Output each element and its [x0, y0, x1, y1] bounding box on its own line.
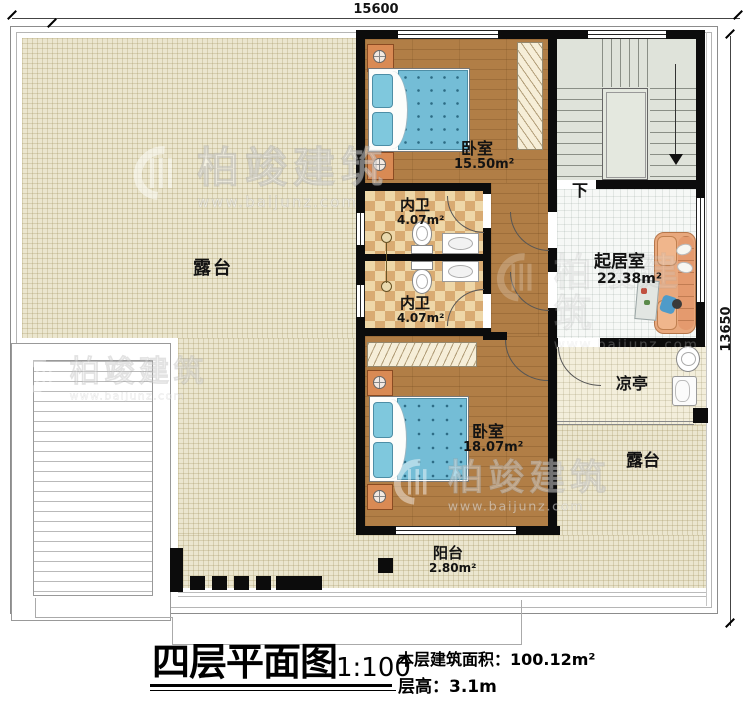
nightstand: [367, 484, 393, 510]
stair-treads-left: [557, 88, 602, 180]
balcony-railing-line: [178, 592, 706, 593]
room-label-bath-top: 内卫: [400, 198, 430, 213]
floor-area-line: 本层建筑面积：100.12m²: [398, 646, 595, 670]
balcony-railing-line: [178, 596, 706, 597]
lower-floor-outline: [35, 598, 36, 618]
plan-title: 四层平面图: [152, 642, 337, 684]
room-label-bedroom-top: 卧室: [461, 141, 493, 157]
wardrobe-bedroom-bottom: [367, 342, 477, 367]
column-balcony: [378, 558, 393, 573]
room-label-pavilion: 凉亭: [616, 376, 648, 392]
floor-height-line: 层高：3.1m: [398, 672, 497, 697]
floor-area-value: 100.12m²: [510, 650, 595, 669]
stair-down-arrowhead: [669, 154, 683, 165]
room-area-bath-top: 4.07m²: [397, 214, 444, 226]
window-bedroom-bottom: [396, 526, 516, 535]
dimension-right-value: 13650: [720, 299, 734, 359]
sink-basin: [448, 237, 473, 250]
pillow: [372, 112, 393, 146]
railing-post: [234, 576, 249, 590]
floor-height-label: 层高：: [398, 677, 449, 697]
door-gap-hall-living-1: [548, 212, 557, 248]
stairs-direction-label: 下: [572, 183, 588, 199]
door-gap-hall-living-2: [548, 272, 557, 308]
railing-segment-long: [276, 576, 322, 590]
lower-roof-slats: [33, 360, 153, 596]
stair-newel-inner: [606, 92, 646, 178]
floor-plan: 柏竣建筑 www.baijunz.com 柏竣建筑 www.baijunz.co…: [0, 0, 750, 704]
terrace-floor-left-column: [178, 338, 356, 535]
door-gap-bath-top: [483, 194, 491, 228]
window-bath-bottom: [356, 285, 365, 317]
pillow: [372, 74, 393, 108]
floor-height-value: 3.1m: [449, 677, 497, 697]
window-living: [696, 198, 705, 302]
lamp-icon: [373, 50, 386, 63]
window-bath-top: [356, 213, 365, 245]
shower-pipe: [386, 242, 387, 283]
stair-walkline: [675, 64, 676, 156]
pavilion-sink-basin: [681, 352, 696, 366]
title-underline-thick: [150, 684, 392, 687]
wall-bath-divider: [356, 254, 491, 261]
room-label-living: 起居室: [594, 254, 645, 271]
lower-floor-outline: [35, 617, 173, 618]
floor-area-label: 本层建筑面积：: [398, 650, 510, 669]
sofa-cushion: [657, 236, 677, 266]
stair-winders: [602, 39, 648, 87]
sink-basin: [448, 265, 473, 278]
room-label-terrace-lower: 露台: [626, 453, 660, 470]
column-pavilion-right: [693, 408, 708, 423]
person-head: [672, 299, 682, 309]
room-label-balcony: 阳台: [433, 546, 463, 561]
toilet-bowl-inner: [416, 274, 428, 289]
wall-west: [356, 30, 365, 535]
room-label-terrace-main: 露台: [193, 260, 233, 278]
railing-corner: [170, 548, 183, 592]
terrace-floor-main: [22, 38, 356, 338]
parapet-line-right: [706, 32, 707, 606]
table-item: [641, 288, 647, 294]
bed-bottom-blanket: [397, 398, 467, 480]
wall-bedroom-bath: [356, 183, 491, 191]
wardrobe-bedroom-top: [517, 42, 543, 150]
lower-floor-outline: [521, 600, 522, 645]
window-stairs: [588, 30, 666, 39]
wall-stairs-living: [596, 180, 705, 189]
railing-post: [212, 576, 227, 590]
railing-post: [256, 576, 271, 590]
terrace-floor-lower-right: [557, 425, 706, 535]
room-area-balcony: 2.80m²: [429, 562, 476, 574]
hallway-floor: [491, 183, 548, 336]
bed-top-blanket: [398, 70, 468, 150]
room-label-bedroom-bottom: 卧室: [472, 424, 504, 440]
room-label-bath-bottom: 内卫: [400, 296, 430, 311]
toilet-bowl-inner: [416, 226, 428, 241]
dimension-line-top: [12, 18, 740, 19]
lamp-icon: [373, 490, 386, 503]
stair-treads-right: [650, 88, 696, 180]
railing-post: [190, 576, 205, 590]
title-underline-thin: [150, 690, 396, 691]
wall-bath-bedroom2: [356, 328, 491, 336]
door-gap-bath-bottom: [483, 294, 491, 328]
toilet-tank: [411, 245, 433, 254]
room-area-bedroom-top: 15.50m²: [454, 158, 514, 171]
pavilion-terrace-divider: [557, 421, 694, 425]
lamp-icon: [373, 158, 386, 171]
pillow: [373, 402, 393, 438]
nightstand: [367, 370, 393, 396]
washing-machine-drum: [675, 380, 690, 402]
room-area-bath-bottom: 4.07m²: [397, 312, 444, 324]
pillow: [373, 442, 393, 478]
table-item: [644, 300, 650, 305]
nightstand: [367, 152, 394, 180]
lamp-icon: [373, 376, 386, 389]
dimension-top-value: 15600: [12, 3, 740, 16]
room-area-living: 22.38m²: [597, 272, 662, 286]
window-bedroom-top: [398, 30, 498, 39]
door-gap-living-pavilion: [558, 338, 600, 347]
room-area-bedroom-bottom: 18.07m²: [463, 441, 523, 454]
